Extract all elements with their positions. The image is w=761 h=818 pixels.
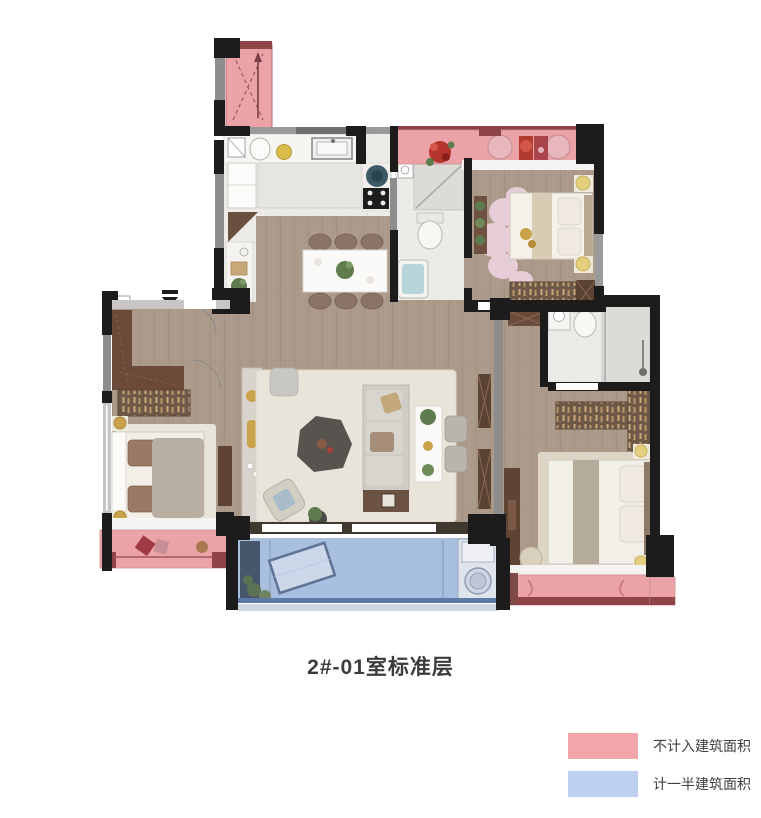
kitchen-island [258,163,362,208]
floor-plan-page: 2#-01室标准层 不计入建筑面积 计一半建筑面积 [0,0,761,818]
basin-icon [250,138,270,160]
bowl-icon [277,145,292,160]
excluded-area-label: 不计入建筑面积 [653,736,751,756]
wardrobe [118,390,190,416]
floor-plan-drawing [0,0,761,818]
stool-icon [488,135,512,159]
stool-icon [546,135,570,159]
lamp-icon [114,417,126,429]
laundry-sink-icon [462,542,494,562]
basket-icon [231,262,247,275]
legend-row-excluded-area: 不计入建筑面积 [568,733,758,759]
plant-icon [422,464,434,476]
plan-title: 2#-01室标准层 [0,651,761,681]
lamp-icon [576,257,590,271]
stairwell [214,38,272,132]
lamp-icon [635,445,647,457]
side-table [270,368,298,396]
plant-icon [308,507,322,521]
south-balcony [238,538,498,611]
cushion-icon [196,541,208,553]
dining-area [303,234,387,309]
left-bay-window [100,518,230,568]
cooktop-icon [363,188,389,209]
legend-row-half-area: 计一半建筑面积 [568,771,758,797]
half-area-label: 计一半建筑面积 [653,774,751,794]
plant-icon [420,409,436,425]
legend: 不计入建筑面积 计一半建筑面积 [568,733,758,809]
living-room [242,368,467,528]
toilet-icon [418,221,442,249]
half-area-swatch [568,771,638,797]
chair [445,446,467,472]
toilet-icon [574,311,596,337]
tv-cabinet [218,446,232,506]
showerhead-icon [639,368,647,376]
excluded-area-swatch [568,733,638,759]
chair [445,416,467,442]
lamp-icon [576,176,590,190]
